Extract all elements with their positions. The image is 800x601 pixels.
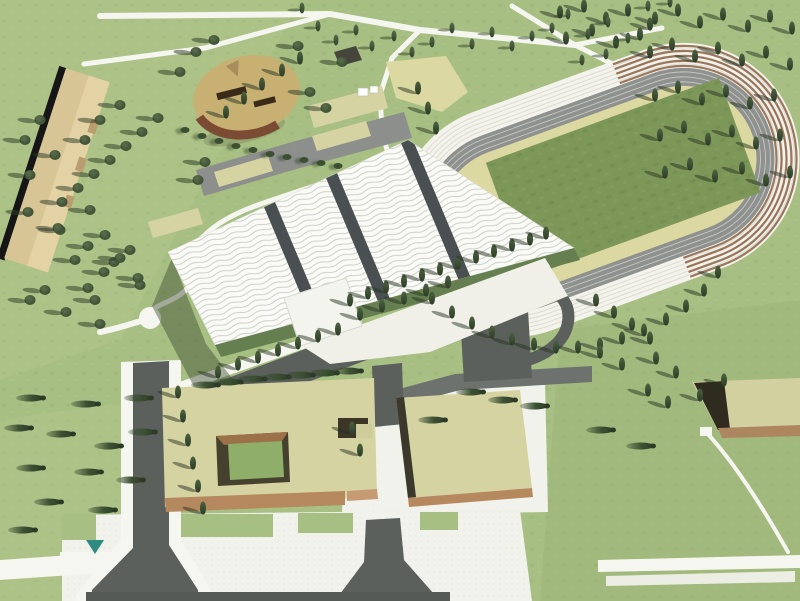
road-bottom-strip <box>86 592 450 601</box>
small-building-door-stoop <box>700 427 712 436</box>
grass-dark-patch <box>540 300 800 601</box>
courtyard-garden <box>228 441 284 480</box>
plaza-bar-a <box>60 552 108 566</box>
courtyard-building-front-wall-b <box>347 489 378 501</box>
office-building-roof <box>396 390 532 498</box>
kiosk-a <box>358 88 368 96</box>
office-building <box>396 390 533 507</box>
small-building <box>692 378 800 438</box>
architectural-rendering <box>0 0 800 601</box>
scene <box>0 0 800 601</box>
courtyard-building <box>162 378 378 512</box>
kiosk-b <box>370 86 378 93</box>
courtyard-building-recess-tab <box>356 424 372 438</box>
